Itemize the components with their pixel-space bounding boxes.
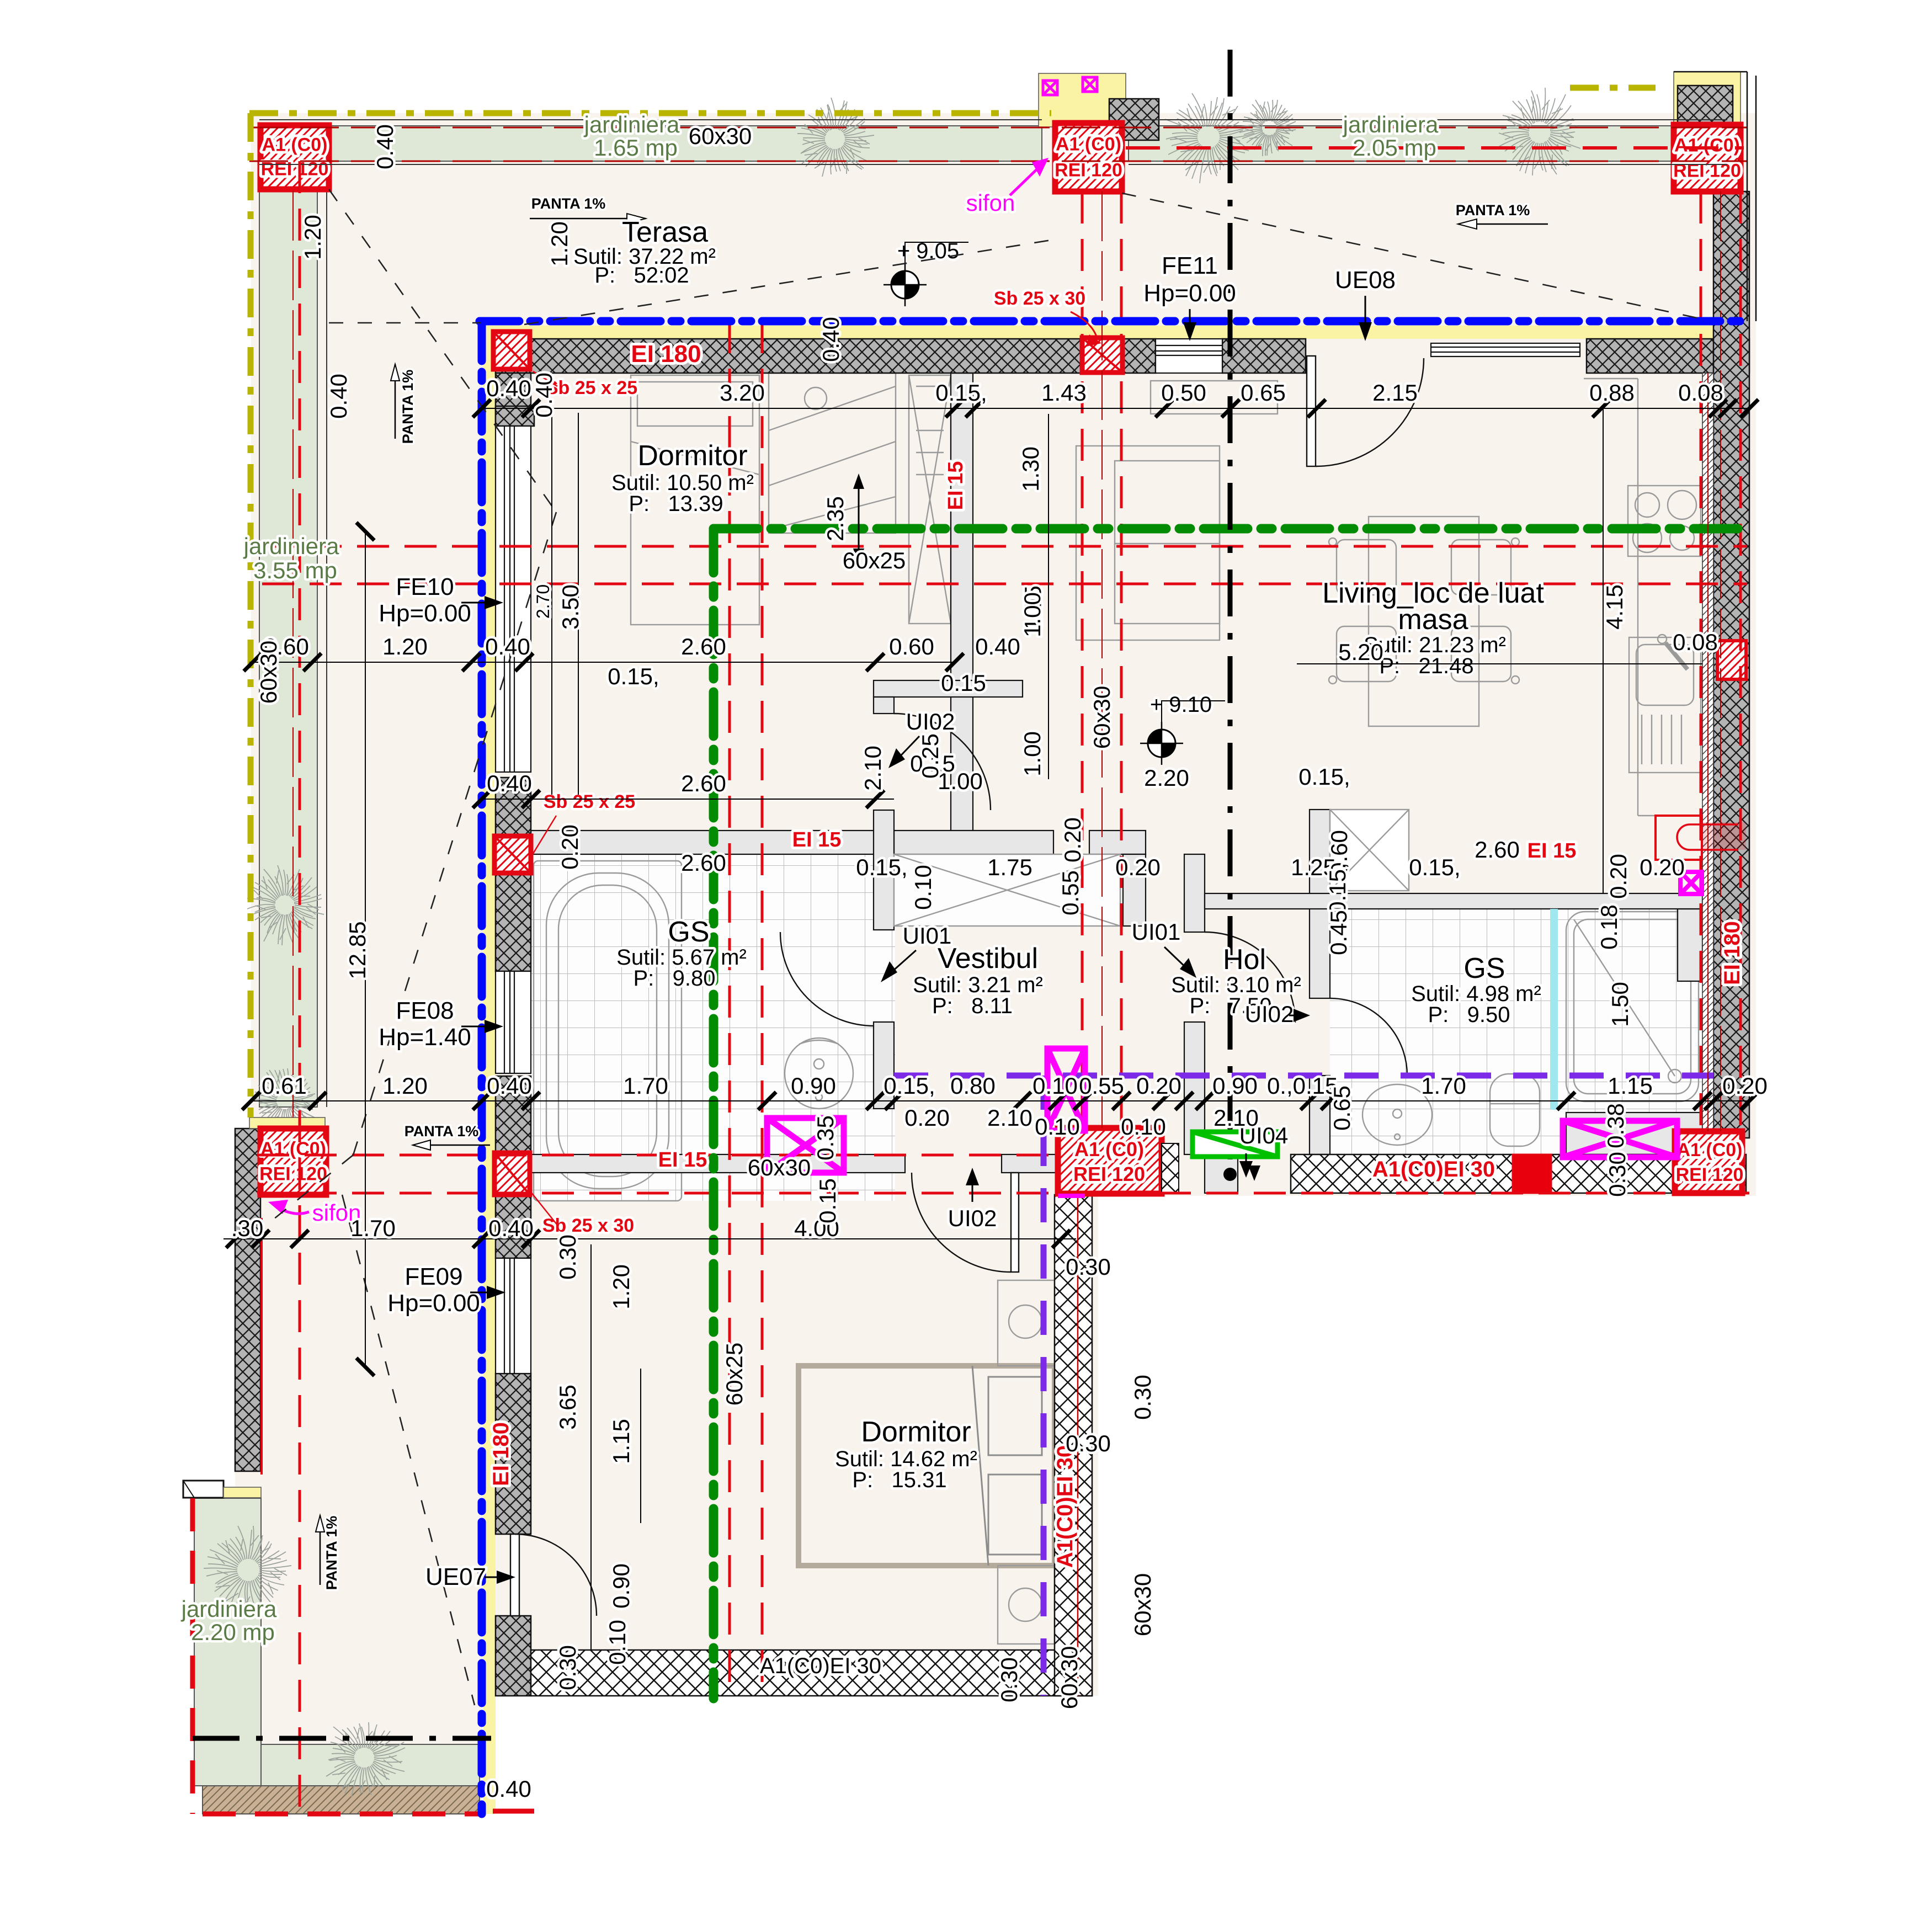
svg-text:1.70: 1.70 (623, 1073, 668, 1099)
svg-text:1.65 mp: 1.65 mp (594, 135, 678, 161)
svg-text:GS: GS (668, 916, 709, 948)
svg-text:1.20: 1.20 (546, 221, 572, 267)
svg-text:0.10: 0.10 (910, 865, 936, 910)
svg-text:P: 52:02: P: 52:02 (594, 263, 689, 288)
svg-text:0.38: 0.38 (1603, 1103, 1628, 1148)
svg-text:0.35: 0.35 (812, 1115, 838, 1161)
svg-text:0.40: 0.40 (975, 634, 1020, 659)
svg-text:A1(C0)EI 30: A1(C0)EI 30 (760, 1654, 881, 1678)
svg-text:0.40: 0.40 (488, 1215, 534, 1241)
svg-text:0.20: 0.20 (557, 824, 583, 870)
svg-text:REI 120: REI 120 (1673, 160, 1741, 181)
svg-text:P: 9.80: P: 9.80 (634, 966, 716, 991)
svg-text:sifon: sifon (966, 190, 1015, 216)
svg-text:0.20: 0.20 (1060, 817, 1085, 863)
svg-text:1.15: 1.15 (608, 1419, 634, 1464)
svg-text:A1(C0)EI 30: A1(C0)EI 30 (1372, 1157, 1495, 1181)
svg-text:Hp=0.00: Hp=0.00 (1143, 280, 1236, 307)
svg-text:jardiniera: jardiniera (583, 111, 680, 137)
svg-text:0.15,: 0.15, (1324, 863, 1350, 914)
svg-text:0.30: 0.30 (1066, 1430, 1111, 1456)
svg-text:1.70: 1.70 (1421, 1073, 1466, 1099)
svg-text:UE07: UE07 (425, 1563, 486, 1590)
svg-text:UI02: UI02 (948, 1205, 997, 1231)
svg-text:0.90: 0.90 (1212, 1073, 1258, 1099)
svg-text:0.30: 0.30 (1066, 1254, 1111, 1280)
svg-text:REI 120: REI 120 (1055, 160, 1122, 181)
svg-text:0.15,: 0.15, (1298, 764, 1350, 790)
svg-text:REI 120: REI 120 (1676, 1164, 1744, 1185)
svg-text:1.20: 1.20 (300, 215, 326, 260)
svg-text:FE11: FE11 (1162, 252, 1218, 279)
svg-text:1.30: 1.30 (1018, 446, 1044, 492)
svg-text:0.15,: 0.15, (883, 1073, 935, 1099)
svg-text:0.20: 0.20 (1722, 1073, 1768, 1099)
svg-text:GS: GS (1463, 952, 1505, 984)
svg-text:PANTA 1%: PANTA 1% (531, 195, 606, 212)
svg-text:1.00: 1.00 (1019, 592, 1045, 637)
svg-text:1.70: 1.70 (350, 1215, 396, 1241)
svg-text:0.40: 0.40 (487, 770, 532, 796)
svg-text:0.20: 0.20 (1136, 1073, 1181, 1099)
svg-text:2.20 mp: 2.20 mp (191, 1619, 275, 1645)
svg-text:0.15,: 0.15, (935, 380, 987, 406)
svg-text:Hp=0.00: Hp=0.00 (387, 1290, 480, 1317)
svg-text:2.60: 2.60 (681, 770, 726, 796)
svg-text:EI 15: EI 15 (1527, 839, 1577, 863)
svg-text:0.65: 0.65 (1329, 1085, 1355, 1131)
svg-text:0.40: 0.40 (486, 1776, 531, 1802)
svg-text:3.50: 3.50 (557, 584, 583, 630)
svg-text:0.60: 0.60 (889, 634, 934, 659)
svg-text:1.00: 1.00 (1019, 731, 1045, 776)
svg-text:EI 180: EI 180 (489, 1422, 513, 1486)
svg-text:0.40: 0.40 (372, 124, 398, 169)
svg-text:0.15,: 0.15, (856, 854, 907, 880)
svg-text:2.10: 2.10 (1214, 1105, 1259, 1131)
svg-text:2.10: 2.10 (860, 746, 886, 791)
svg-text:2.60: 2.60 (681, 850, 726, 876)
svg-text:0.30: 0.30 (555, 1234, 581, 1280)
svg-text:A1 (C0): A1 (C0) (262, 134, 327, 155)
svg-text:60x30: 60x30 (1056, 1646, 1082, 1709)
svg-text:0.15: 0.15 (815, 1178, 840, 1223)
svg-text:jardiniera: jardiniera (180, 1596, 277, 1622)
svg-text:EI 180: EI 180 (631, 340, 701, 368)
svg-text:12.85: 12.85 (344, 921, 370, 979)
svg-text:Terasa: Terasa (622, 216, 708, 248)
svg-text:UI02: UI02 (1245, 1001, 1294, 1027)
svg-text:0.45: 0.45 (1326, 910, 1351, 955)
svg-text:jardiniera: jardiniera (1342, 111, 1439, 137)
svg-text:A1(C0)EI 30: A1(C0)EI 30 (1053, 1445, 1077, 1568)
svg-text:Hp=0.00: Hp=0.00 (379, 600, 471, 627)
svg-text:EI 15: EI 15 (792, 828, 842, 851)
svg-text:0.15: 0.15 (941, 670, 986, 696)
svg-text:2.60: 2.60 (681, 634, 726, 659)
svg-text:0.15,: 0.15, (608, 663, 659, 689)
svg-text:2.20: 2.20 (1144, 765, 1189, 791)
svg-text:REI 120: REI 120 (1073, 1163, 1145, 1185)
svg-text:1.20: 1.20 (608, 1264, 634, 1310)
svg-text:0.40: 0.40 (531, 372, 557, 418)
svg-text:0.15,: 0.15, (1409, 854, 1460, 880)
svg-text:3.55 mp: 3.55 mp (253, 557, 337, 583)
svg-text:Sb 25 x 25: Sb 25 x 25 (544, 791, 635, 812)
svg-text:60x30: 60x30 (1130, 1573, 1156, 1636)
svg-text:0.30: 0.30 (1604, 1152, 1630, 1197)
svg-text:60x30: 60x30 (689, 123, 752, 149)
svg-text:PANTA 1%: PANTA 1% (1456, 202, 1530, 219)
svg-text:3.65: 3.65 (555, 1385, 581, 1430)
svg-text:4.15: 4.15 (1601, 584, 1627, 630)
svg-text:Sb 25 x 30: Sb 25 x 30 (542, 1215, 634, 1236)
svg-text:0.40: 0.40 (487, 1073, 532, 1099)
svg-text:2.10: 2.10 (987, 1105, 1032, 1131)
svg-text:FE10: FE10 (396, 573, 454, 600)
svg-text:1.43: 1.43 (1041, 380, 1087, 406)
svg-text:0.61: 0.61 (262, 1073, 307, 1099)
svg-text:60x30: 60x30 (748, 1154, 811, 1180)
svg-text:0.55: 0.55 (1057, 870, 1083, 916)
svg-text:0.30: 0.30 (1130, 1375, 1156, 1420)
svg-text:5.20: 5.20 (1338, 639, 1383, 665)
svg-text:Vestibul: Vestibul (938, 943, 1038, 975)
svg-text:0.20: 0.20 (1640, 854, 1685, 880)
svg-text:1.75: 1.75 (987, 854, 1032, 880)
svg-text:P: 15.31: P: 15.31 (852, 1468, 946, 1492)
svg-text:1.15: 1.15 (1608, 1073, 1653, 1099)
svg-text:0.55: 0.55 (1079, 1073, 1124, 1099)
svg-text:0.10: 0.10 (604, 1620, 630, 1665)
svg-text:0.40: 0.40 (486, 375, 531, 401)
svg-text:0.88: 0.88 (1589, 380, 1635, 406)
svg-text:0.40: 0.40 (485, 634, 530, 659)
svg-text:0.40: 0.40 (326, 374, 352, 419)
svg-text:Dormitor: Dormitor (861, 1416, 971, 1448)
svg-text:60x30: 60x30 (1089, 686, 1115, 749)
svg-text:1.50: 1.50 (1607, 982, 1633, 1027)
svg-text:UE08: UE08 (1335, 267, 1396, 294)
svg-text:EI 180: EI 180 (1720, 921, 1744, 985)
svg-text:PANTA 1%: PANTA 1% (323, 1516, 340, 1590)
svg-text:A1 (C0): A1 (C0) (1056, 134, 1121, 155)
svg-text:0.20: 0.20 (1605, 854, 1631, 899)
svg-text:EI 15: EI 15 (944, 461, 967, 510)
svg-text:UI01: UI01 (1132, 919, 1181, 945)
svg-text:2.05 mp: 2.05 mp (1353, 135, 1436, 161)
svg-text:Sb 25 x 25: Sb 25 x 25 (546, 377, 637, 398)
svg-text:0.20: 0.20 (1115, 854, 1161, 880)
svg-text:0.20: 0.20 (904, 1105, 950, 1131)
svg-text:Hp=1.40: Hp=1.40 (379, 1024, 471, 1051)
svg-text:+ 9.10: + 9.10 (1150, 693, 1212, 717)
svg-text:0.10: 0.10 (1121, 1114, 1166, 1140)
svg-text:0.50: 0.50 (1161, 380, 1206, 406)
svg-text:0.30: 0.30 (996, 1657, 1022, 1702)
svg-text:jardiniera: jardiniera (243, 533, 339, 559)
svg-text:PANTA 1%: PANTA 1% (405, 1123, 479, 1140)
svg-text:FE08: FE08 (396, 997, 454, 1024)
svg-text:A1 (C0): A1 (C0) (1674, 135, 1740, 156)
svg-text:3.20: 3.20 (720, 380, 765, 406)
svg-text:1.20: 1.20 (382, 634, 428, 659)
svg-text:REI 120: REI 120 (259, 1164, 327, 1185)
svg-text:1.20: 1.20 (382, 1073, 428, 1099)
svg-text:2.60: 2.60 (1475, 837, 1520, 863)
svg-text:Sb 25 x 30: Sb 25 x 30 (994, 288, 1085, 309)
svg-text:0.40: 0.40 (818, 317, 844, 362)
svg-text:60x25: 60x25 (843, 547, 906, 573)
svg-text:0.90: 0.90 (608, 1563, 634, 1609)
svg-text:PANTA 1%: PANTA 1% (400, 370, 416, 444)
svg-text:Dormitor: Dormitor (637, 440, 747, 472)
svg-text:0.10: 0.10 (1032, 1073, 1078, 1099)
svg-text:.30: .30 (231, 1215, 263, 1241)
svg-text:Hol: Hol (1223, 944, 1266, 976)
svg-text:0.80: 0.80 (950, 1073, 996, 1099)
svg-text:2.70: 2.70 (533, 584, 553, 619)
svg-text:60x30: 60x30 (256, 641, 281, 704)
svg-text:60x25: 60x25 (721, 1343, 747, 1406)
svg-text:FE09: FE09 (405, 1263, 462, 1290)
svg-text:P: 13.39: P: 13.39 (629, 492, 723, 516)
svg-text:0.30: 0.30 (555, 1645, 581, 1690)
svg-text:2.35: 2.35 (822, 496, 848, 541)
svg-text:0.90: 0.90 (791, 1073, 836, 1099)
svg-text:masa: masa (1398, 604, 1468, 636)
svg-text:EI 15: EI 15 (658, 1148, 707, 1172)
svg-text:P: 9.50: P: 9.50 (1428, 1003, 1510, 1027)
svg-text:0.08: 0.08 (1678, 380, 1723, 406)
svg-text:0.65: 0.65 (1241, 380, 1286, 406)
svg-text:UI02: UI02 (906, 709, 955, 735)
svg-text:UI01: UI01 (903, 923, 952, 949)
svg-text:P: 21.48: P: 21.48 (1379, 654, 1473, 678)
svg-text:0.18: 0.18 (1596, 904, 1622, 950)
svg-text:P: 8.11: P: 8.11 (932, 994, 1013, 1018)
svg-text:0.25: 0.25 (917, 733, 943, 779)
svg-text:A1 (C0): A1 (C0) (1074, 1138, 1144, 1161)
svg-text:2.15: 2.15 (1372, 380, 1418, 406)
svg-text:0.08: 0.08 (1673, 629, 1718, 655)
svg-text:A1 (C0): A1 (C0) (1676, 1140, 1742, 1161)
svg-text:0.10: 0.10 (1035, 1114, 1080, 1140)
